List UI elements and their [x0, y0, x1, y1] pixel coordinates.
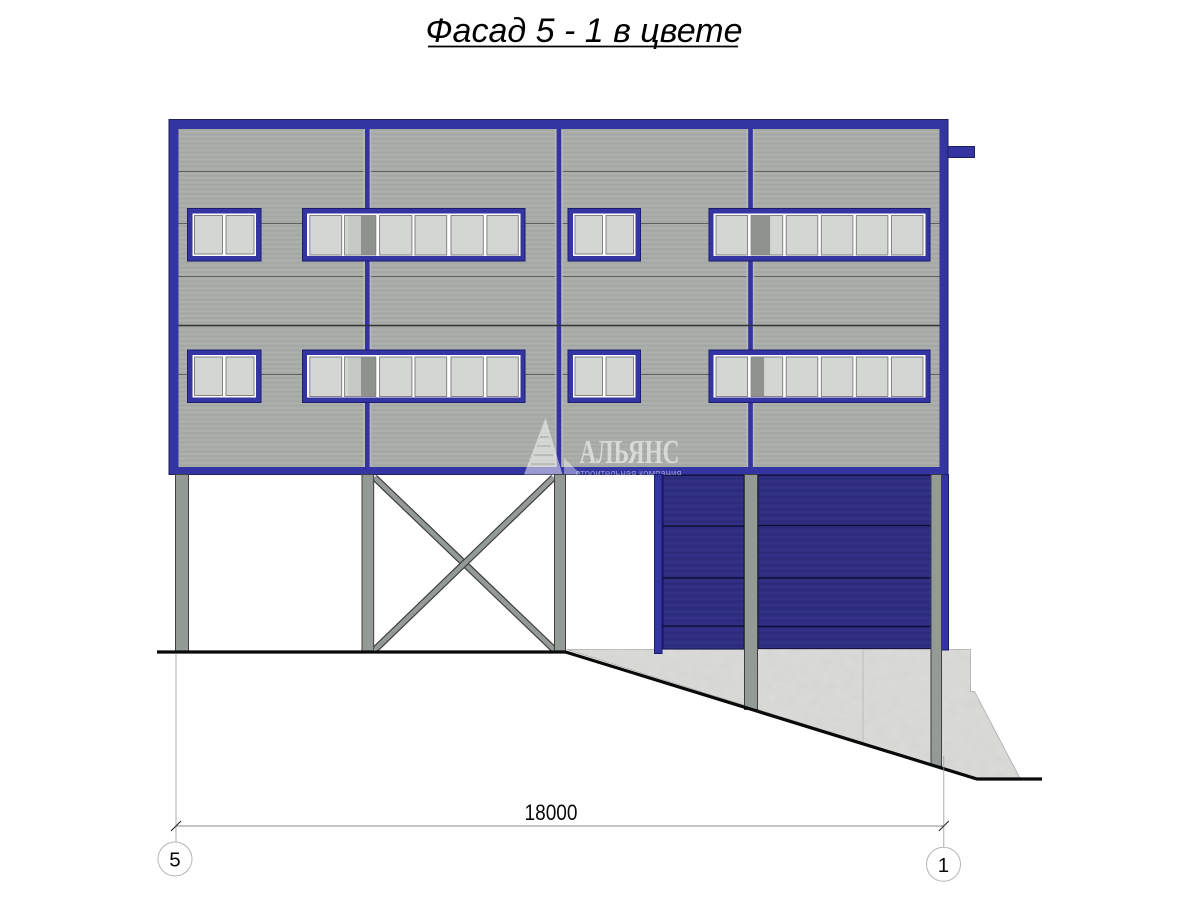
svg-text:1: 1	[938, 854, 949, 877]
svg-text:АЛЬЯНС: АЛЬЯНС	[580, 434, 680, 471]
svg-text:5: 5	[169, 849, 180, 872]
svg-text:18000: 18000	[525, 800, 578, 825]
svg-text:Фасад 5 - 1 в цвете: Фасад 5 - 1 в цвете	[426, 12, 743, 50]
